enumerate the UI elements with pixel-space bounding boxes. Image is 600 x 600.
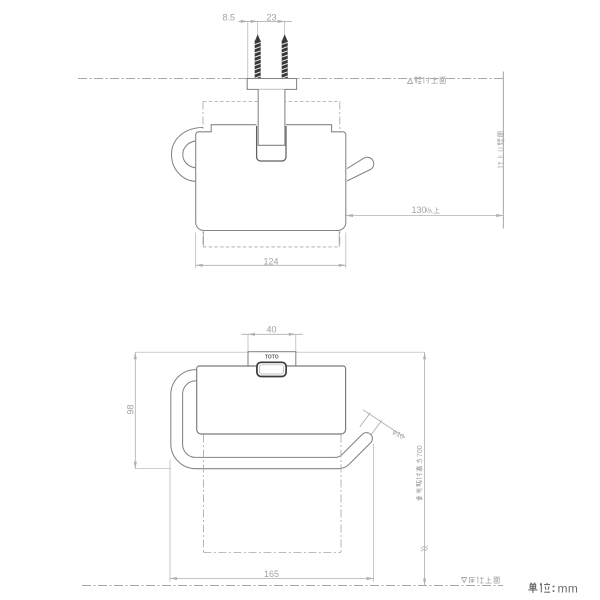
svg-text:130: 130: [412, 205, 427, 215]
svg-text:40: 40: [267, 325, 277, 335]
svg-text:23: 23: [267, 12, 277, 22]
svg-text:700: 700: [417, 445, 424, 457]
svg-text:TOTO: TOTO: [265, 354, 279, 360]
svg-text:mm: mm: [558, 582, 579, 596]
svg-text:165: 165: [264, 569, 279, 579]
svg-text:98: 98: [126, 404, 136, 414]
svg-text:8.5: 8.5: [223, 12, 236, 22]
svg-text:124: 124: [264, 257, 279, 267]
